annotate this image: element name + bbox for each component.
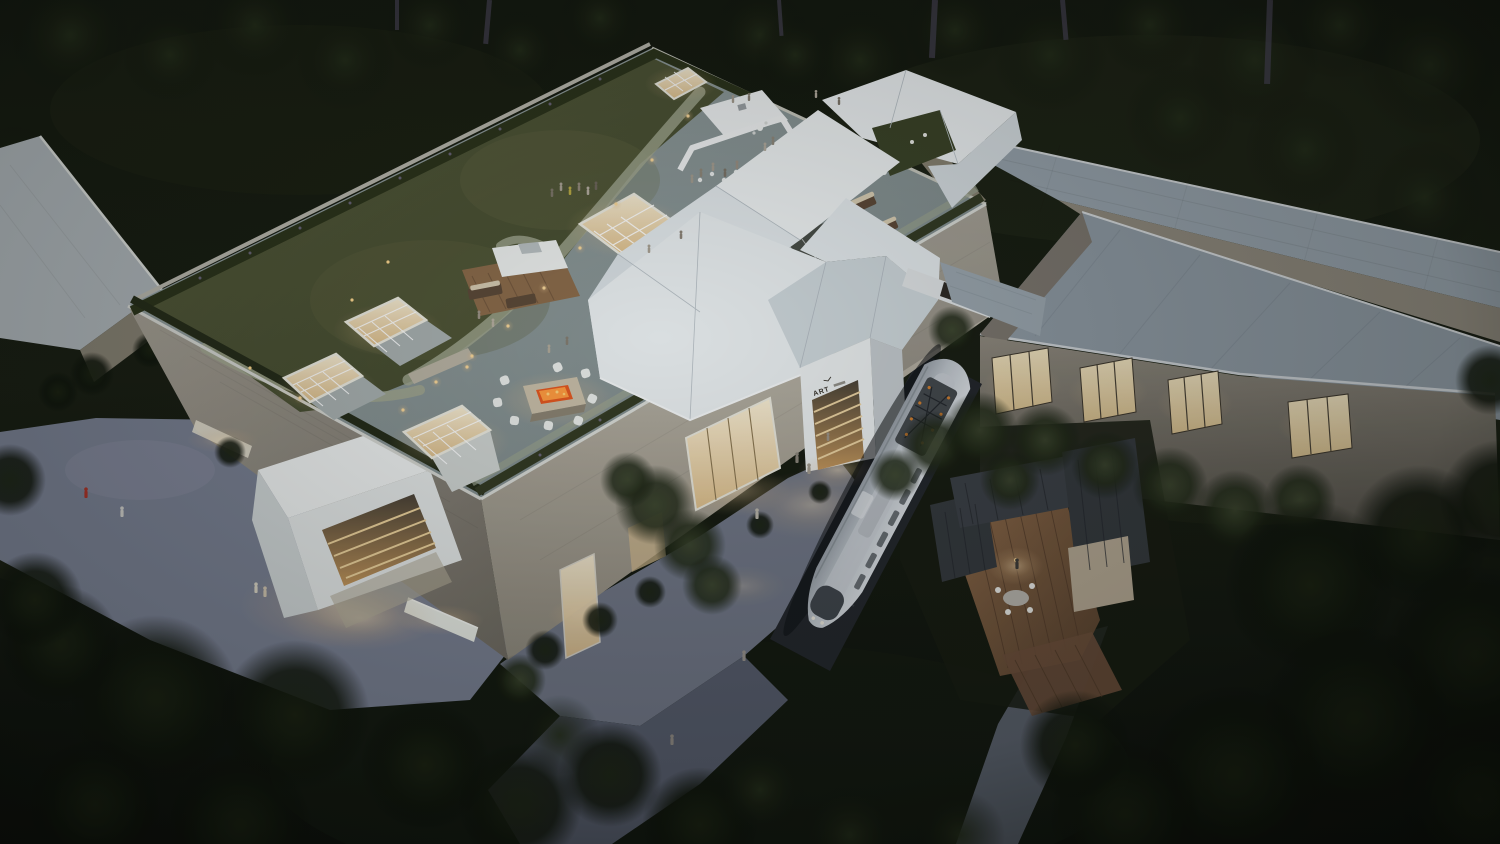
architectural-rendering: ART [0, 0, 1500, 844]
vignette [0, 0, 1500, 844]
